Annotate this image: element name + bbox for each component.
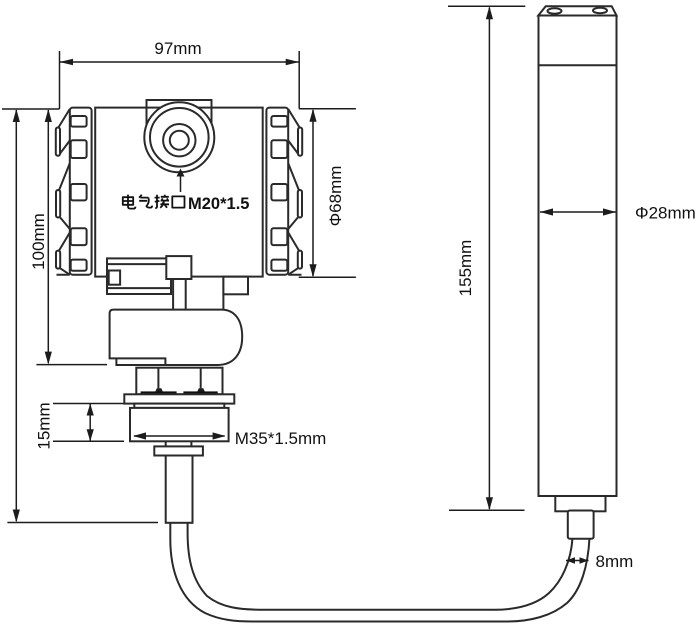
svg-text:155mm: 155mm <box>456 240 475 297</box>
svg-text:15mm: 15mm <box>35 402 54 449</box>
svg-text:M20*1.5: M20*1.5 <box>188 195 249 213</box>
svg-text:Φ28mm: Φ28mm <box>635 204 696 223</box>
svg-text:Φ68mm: Φ68mm <box>326 166 345 227</box>
svg-text:M35*1.5mm: M35*1.5mm <box>235 429 327 448</box>
svg-text:100mm: 100mm <box>29 213 48 270</box>
svg-text:8mm: 8mm <box>596 552 634 571</box>
svg-text:97mm: 97mm <box>154 39 201 58</box>
